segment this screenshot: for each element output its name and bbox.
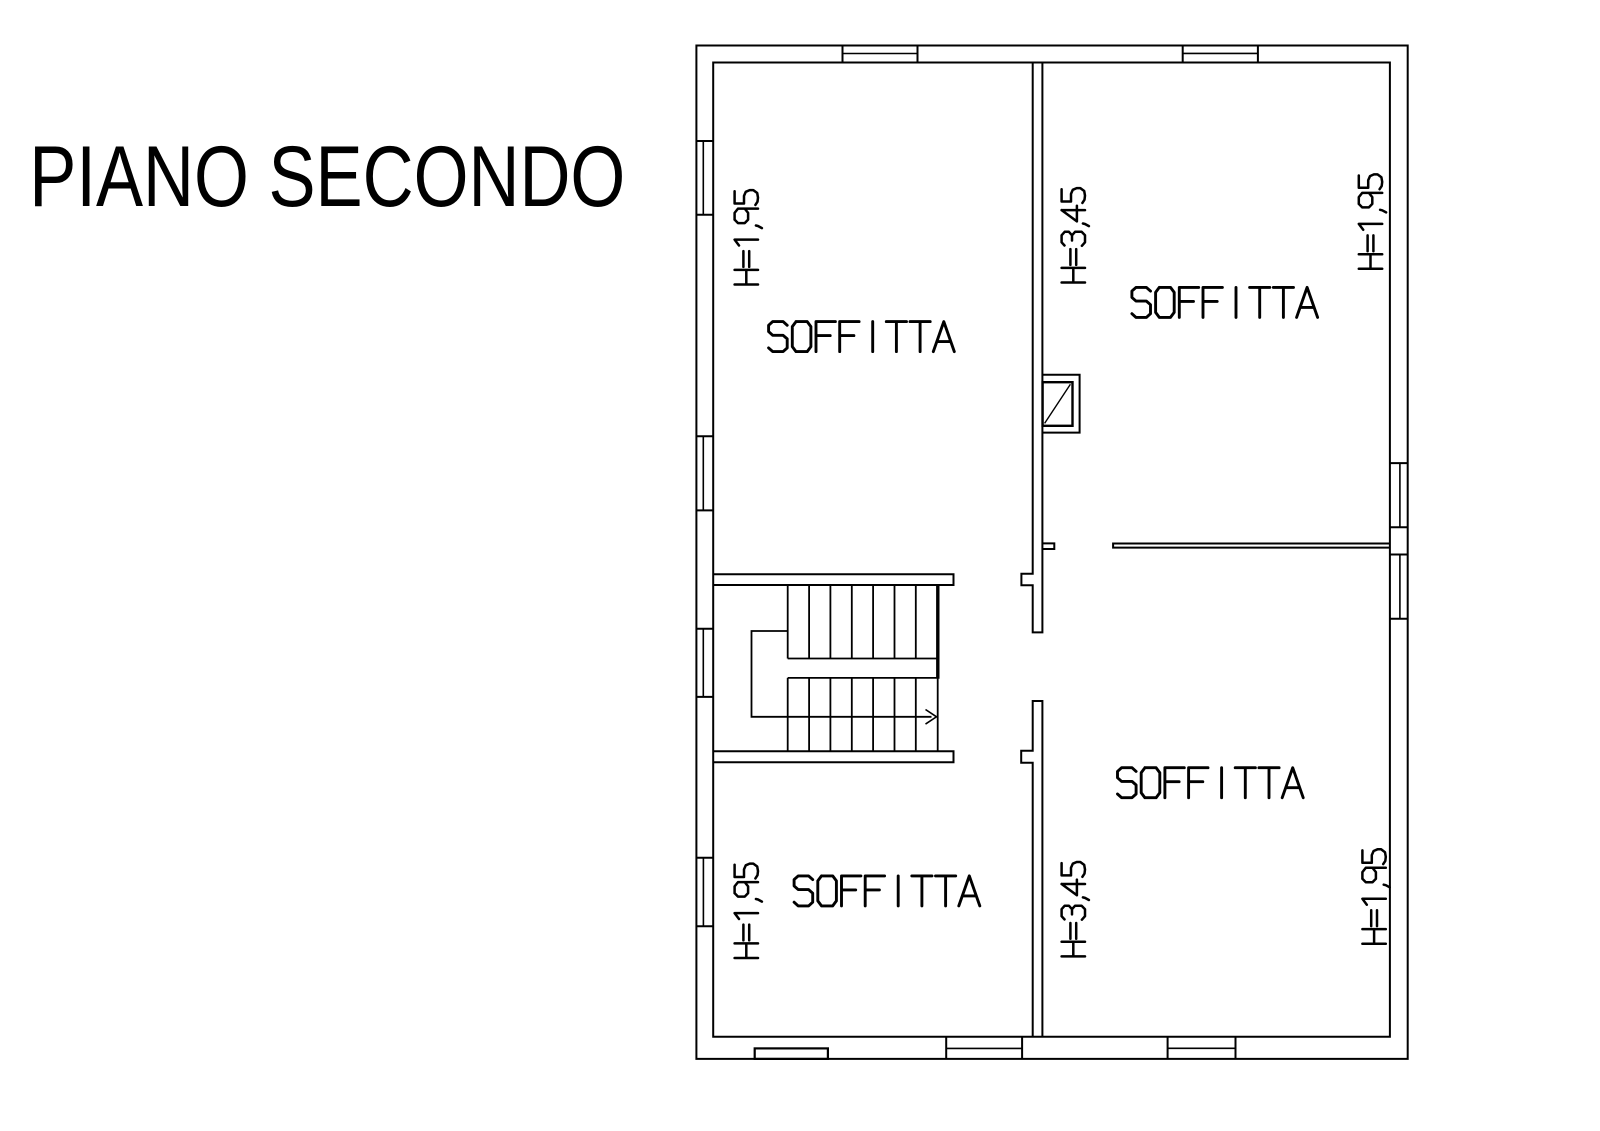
svg-text:PIANO SECONDO: PIANO SECONDO — [29, 129, 625, 225]
